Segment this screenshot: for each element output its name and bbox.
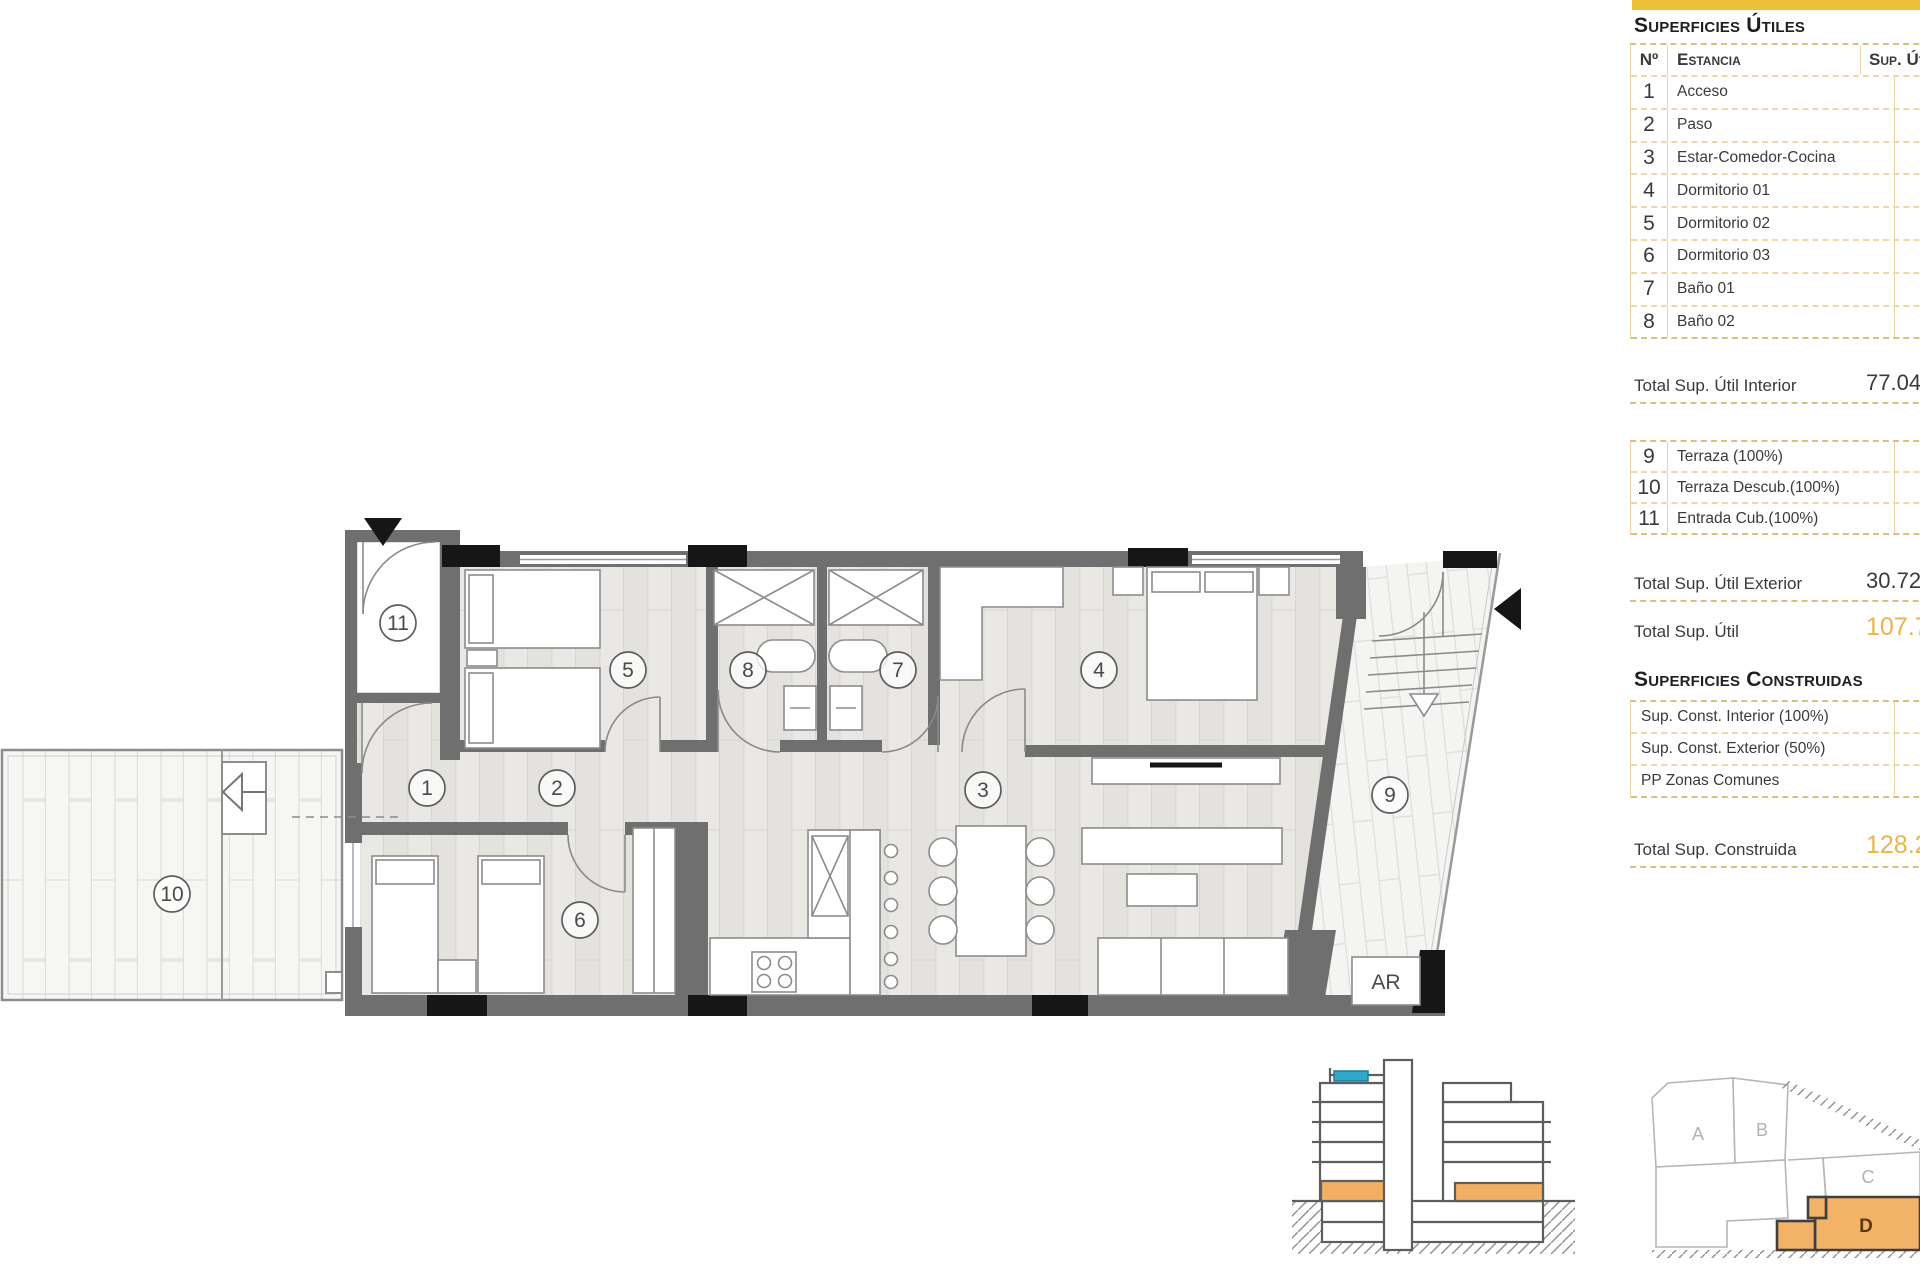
table-row: 4Dormitorio 0115.03: [1631, 175, 1920, 208]
room-circle: 1: [409, 770, 445, 806]
total-interior: Total Sup. Útil Interior 77.04: [1630, 366, 1920, 404]
room-circle: 11: [380, 605, 416, 641]
table-row: PP Zonas Comunes14.05: [1631, 766, 1920, 798]
svg-text:3: 3: [977, 779, 989, 802]
accent-bar: [1632, 0, 1920, 10]
sink: [829, 640, 887, 672]
svg-text:6: 6: [574, 909, 586, 932]
svg-text:2: 2: [551, 777, 563, 800]
construidas-title: Superficies Construidas: [1634, 668, 1863, 692]
table-row: 7Baño 013.71: [1631, 274, 1920, 307]
dining-table: [929, 826, 1054, 956]
utiles-table: Nº Estancia Sup. Útil 1Acceso1.94 2Paso3…: [1630, 43, 1920, 339]
room-circle: 2: [539, 770, 575, 806]
col-room: Estancia: [1668, 45, 1860, 75]
svg-text:4: 4: [1093, 659, 1105, 682]
block-d-label: D: [1859, 1216, 1873, 1237]
svg-text:9: 9: [1384, 784, 1396, 807]
table-row: 9Terraza (100%)11.88: [1631, 442, 1920, 473]
svg-text:7: 7: [892, 659, 904, 682]
room-circle: 3: [965, 772, 1001, 808]
tv-console: [1092, 758, 1280, 784]
exterior-table: 9Terraza (100%)11.88 10Terraza Descub.(1…: [1630, 440, 1920, 535]
svg-text:10: 10: [160, 883, 183, 906]
room-circle: 9: [1372, 777, 1408, 813]
construidas-table: Sup. Const. Interior (100%)90.48 Sup. Co…: [1630, 700, 1920, 798]
col-num: Nº: [1631, 45, 1668, 75]
svg-text:1: 1: [421, 777, 433, 800]
col-sup: Sup. Útil: [1860, 45, 1920, 75]
table-row: 10Terraza Descub.(100%)16.08: [1631, 473, 1920, 504]
floor-plan: AR 1 2 3 4 5 6 7 8 9 10 11: [2, 518, 1521, 1016]
table-header: Nº Estancia Sup. Útil: [1631, 45, 1920, 77]
level-step-icon: [222, 762, 266, 834]
svg-text:11: 11: [387, 612, 409, 635]
table-row: Sup. Const. Interior (100%)90.48: [1631, 702, 1920, 734]
block-b-label: B: [1756, 1120, 1768, 1140]
terrace-entry-arrow-icon: [1494, 588, 1521, 630]
table-row: 2Paso3.67: [1631, 110, 1920, 143]
building-section-diagram: [1292, 1060, 1575, 1254]
storage-label: AR: [1371, 971, 1400, 994]
room-circle: 5: [610, 652, 646, 688]
room-circle: 4: [1081, 652, 1117, 688]
svg-text:8: 8: [742, 659, 754, 682]
total-construida: Total Sup. Construida 128.21: [1630, 826, 1920, 868]
table-row: 5Dormitorio 029.29: [1631, 208, 1920, 241]
table-row: 1Acceso1.94: [1631, 77, 1920, 110]
table-row: 6Dormitorio 0310.30: [1631, 241, 1920, 274]
room-circle: 8: [730, 652, 766, 688]
table-row: 8Baño 023.71: [1631, 307, 1920, 340]
utiles-title: Superficies Útiles: [1634, 14, 1805, 38]
table-row: 3Estar-Comedor-Cocina29.39: [1631, 143, 1920, 176]
table-row: Sup. Const. Exterior (50%)23.68: [1631, 734, 1920, 766]
site-boundary-hatch: [1782, 1078, 1920, 1150]
site-key-plan: A B C D: [1652, 1078, 1920, 1258]
room-circle: 7: [880, 652, 916, 688]
surface-data-panel: Superficies Útiles Nº Estancia Sup. Útil…: [1630, 0, 1920, 900]
table-row: 11Entrada Cub.(100%)2.76: [1631, 504, 1920, 535]
total-exterior: Total Sup. Útil Exterior 30.72: [1630, 564, 1920, 602]
room-circle: 6: [562, 902, 598, 938]
unit-location-marker: [1334, 1071, 1368, 1081]
room-circle: 10: [154, 876, 190, 912]
block-a-label: A: [1692, 1124, 1704, 1144]
block-c-label: C: [1862, 1167, 1875, 1187]
terrace-10: [2, 750, 342, 1000]
svg-text:5: 5: [622, 659, 634, 682]
total-util: Total Sup. Útil 107.76: [1630, 606, 1920, 648]
